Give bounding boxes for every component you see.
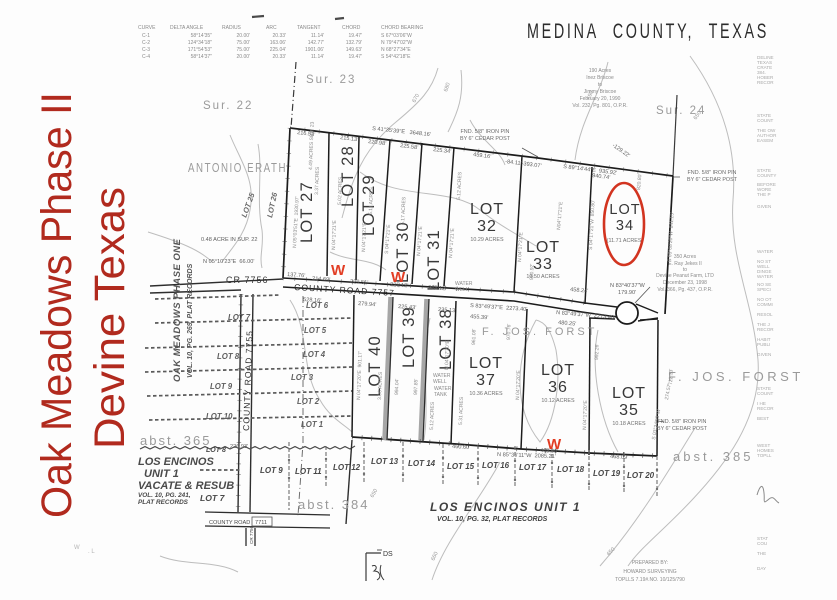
svg-text:163.06': 163.06' <box>270 40 286 46</box>
svg-text:LOT 39: LOT 39 <box>400 306 418 368</box>
svg-text:W: W <box>547 436 562 453</box>
svg-text:TANK: TANK <box>434 392 448 398</box>
svg-text:LOT 16: LOT 16 <box>482 461 510 470</box>
svg-text:10.29 ACRES: 10.29 ACRES <box>470 237 504 243</box>
svg-text:149.63': 149.63' <box>346 47 362 53</box>
svg-text:994.04': 994.04' <box>394 379 401 395</box>
svg-text:124°34'18": 124°34'18" <box>188 40 212 46</box>
svg-text:225.04': 225.04' <box>270 47 286 53</box>
svg-text:COUNT: COUNT <box>757 391 774 396</box>
svg-text:5.31 ACRES: 5.31 ACRES <box>458 396 465 425</box>
svg-text:528.16': 528.16' <box>303 297 322 304</box>
svg-text:3.06 ACRES: 3.06 ACRES <box>377 371 384 400</box>
svg-text:LOT 7: LOT 7 <box>200 493 226 503</box>
svg-text:10.36 ACRES: 10.36 ACRES <box>469 391 503 397</box>
svg-text:33: 33 <box>533 256 553 273</box>
svg-text:5.02 ACRES: 5.02 ACRES <box>337 176 344 205</box>
svg-text:OAK MEADOWS PHASE ONE: OAK MEADOWS PHASE ONE <box>172 238 183 382</box>
svg-text:35: 35 <box>619 402 639 419</box>
svg-text:75.00': 75.00' <box>237 47 251 53</box>
svg-text:19.47': 19.47' <box>349 33 363 39</box>
svg-text:COUNTY ROAD: COUNTY ROAD <box>209 520 250 526</box>
svg-text:LOT: LOT <box>612 385 646 402</box>
svg-text:RECOR: RECOR <box>757 327 774 332</box>
svg-text:THE: THE <box>757 551 766 556</box>
svg-text:F. JOS. FORST: F. JOS. FORST <box>668 369 804 384</box>
svg-text:11.14': 11.14' <box>311 33 324 39</box>
svg-text:997.85': 997.85' <box>413 379 420 395</box>
svg-text:N 83°40'37"W: N 83°40'37"W <box>610 283 646 289</box>
svg-text:LOT: LOT <box>470 201 504 218</box>
svg-text:W: W <box>331 262 346 279</box>
svg-text:455.39': 455.39' <box>470 314 489 321</box>
svg-text:DS: DS <box>383 551 393 558</box>
svg-text:LOT 1: LOT 1 <box>301 420 323 429</box>
svg-text:58°14'35": 58°14'35" <box>191 33 213 39</box>
svg-text:LOT 3: LOT 3 <box>291 373 314 382</box>
svg-text:RECOR: RECOR <box>757 406 774 411</box>
svg-text:LOT 8: LOT 8 <box>217 352 240 361</box>
svg-text:UNIT 1: UNIT 1 <box>144 468 179 480</box>
svg-text:20.00': 20.00' <box>237 33 251 39</box>
svg-text:VACATE & RESUB: VACATE & RESUB <box>138 480 234 492</box>
svg-text:LOS ENCINOS UNIT 1: LOS ENCINOS UNIT 1 <box>430 500 581 514</box>
svg-text:TANGENT: TANGENT <box>297 25 321 31</box>
svg-text:460.60': 460.60' <box>452 444 470 451</box>
svg-text:171°54'53": 171°54'53" <box>188 47 212 53</box>
svg-text:LOT 8: LOT 8 <box>206 447 226 454</box>
svg-text:992.26': 992.26' <box>594 344 601 360</box>
svg-text:EASEM: EASEM <box>757 138 773 143</box>
svg-text:DAY: DAY <box>757 566 766 571</box>
svg-text:20.33': 20.33' <box>273 33 287 39</box>
svg-text:980.92': 980.92' <box>529 264 536 280</box>
svg-text:ANTONIO ERATH: ANTONIO ERATH <box>188 161 287 175</box>
svg-text:MEDINA COUNTY, TEXAS: MEDINA COUNTY, TEXAS <box>527 19 769 43</box>
svg-text:LOT 15: LOT 15 <box>447 462 475 471</box>
svg-text:PREPARED BY:: PREPARED BY: <box>632 560 668 566</box>
svg-text:abst. 384: abst. 384 <box>298 497 370 512</box>
svg-text:W: W <box>74 545 80 551</box>
svg-text:RECOR: RECOR <box>757 80 774 85</box>
svg-text:N 04°17'20"E: N 04°17'20"E <box>582 399 589 430</box>
svg-text:COUNTY: COUNTY <box>757 173 776 178</box>
svg-text:CURVE: CURVE <box>138 25 156 31</box>
svg-text:N 05°10'23"E 66.00': N 05°10'23"E 66.00' <box>203 259 254 265</box>
svg-text:BY 6" CEDAR POST: BY 6" CEDAR POST <box>687 177 738 183</box>
svg-text:VOL. 10, PG. 32, PLAT RECORDS: VOL. 10, PG. 32, PLAT RECORDS <box>437 516 548 523</box>
svg-text:LOT 9: LOT 9 <box>260 466 283 475</box>
svg-text:32: 32 <box>477 218 497 235</box>
svg-text:LOT 4: LOT 4 <box>303 350 326 359</box>
svg-text:THE P: THE P <box>757 192 771 197</box>
svg-text:LOT 7: LOT 7 <box>228 313 251 322</box>
svg-text:36: 36 <box>548 379 568 396</box>
svg-text:December 23, 1998: December 23, 1998 <box>663 280 707 286</box>
svg-text:Inez Briscoe: Inez Briscoe <box>586 75 614 81</box>
svg-text:5.11 ACRES: 5.11 ACRES <box>368 187 375 216</box>
svg-text:C-4: C-4 <box>142 54 150 60</box>
svg-text:LOT 2: LOT 2 <box>297 397 320 406</box>
svg-text:11.14': 11.14' <box>311 54 324 60</box>
svg-text:F. JOS. FORST: F. JOS. FORST <box>482 326 597 338</box>
svg-text:C-3: C-3 <box>142 47 150 53</box>
svg-text:DELTA ANGLE: DELTA ANGLE <box>170 25 204 31</box>
svg-text:LOT 14: LOT 14 <box>408 459 436 468</box>
svg-text:RADIUS: RADIUS <box>222 25 242 31</box>
svg-text:FND. 5/8" IRON PIN: FND. 5/8" IRON PIN <box>461 129 510 135</box>
svg-text:RESOL: RESOL <box>757 312 773 317</box>
svg-text:LOT 17: LOT 17 <box>519 463 547 472</box>
svg-text:142.77': 142.77' <box>308 40 324 46</box>
svg-text:N 79°47'02"W: N 79°47'02"W <box>381 40 412 46</box>
svg-text:10.12 ACRES: 10.12 ACRES <box>541 398 575 404</box>
svg-text:Devine Peanut Farm, LTD: Devine Peanut Farm, LTD <box>656 273 714 279</box>
svg-text:W: W <box>391 269 406 286</box>
svg-text:226.93': 226.93' <box>230 444 248 450</box>
svg-text:LOT: LOT <box>609 202 640 218</box>
svg-text:Vol. 232, Pg. 801, O.P.R.: Vol. 232, Pg. 801, O.P.R. <box>572 103 627 109</box>
svg-text:5.12 ACRES: 5.12 ACRES <box>429 401 436 430</box>
svg-text:N 04°17'21"E: N 04°17'21"E <box>331 219 338 250</box>
svg-text:137.76': 137.76' <box>287 272 306 279</box>
svg-text:N 68°27'34"E: N 68°27'34"E <box>381 47 411 53</box>
svg-text:7711: 7711 <box>255 520 267 526</box>
svg-text:N 04°17'21"E: N 04°17'21"E <box>361 221 368 252</box>
svg-text:LOT: LOT <box>526 239 560 256</box>
svg-text:VOL. 10, PG. 241,: VOL. 10, PG. 241, <box>138 492 191 499</box>
svg-text:COU: COU <box>757 541 767 546</box>
svg-text:LOS ENCINOS: LOS ENCINOS <box>138 456 214 468</box>
svg-text:abst. 385: abst. 385 <box>673 449 754 464</box>
svg-text:to: to <box>598 82 602 88</box>
svg-text:10.18 ACRES: 10.18 ACRES <box>612 421 646 427</box>
svg-text:58°14'37": 58°14'37" <box>191 54 213 60</box>
svg-text:S 67°03'06"W: S 67°03'06"W <box>381 33 412 39</box>
svg-text:HOWARD SURVEYING: HOWARD SURVEYING <box>623 569 676 575</box>
svg-text:Sur. 23: Sur. 23 <box>306 74 356 86</box>
svg-text:BEST: BEST <box>757 416 769 421</box>
svg-text:19.47': 19.47' <box>349 54 363 60</box>
svg-text:LOT 19: LOT 19 <box>593 469 621 478</box>
svg-text:235.13': 235.13' <box>438 307 457 314</box>
svg-text:37: 37 <box>476 372 496 389</box>
svg-text:3.37 ACRES: 3.37 ACRES <box>314 166 321 195</box>
svg-text:S 54°42'18"E: S 54°42'18"E <box>381 54 411 60</box>
svg-text:abst. 365: abst. 365 <box>140 433 212 448</box>
svg-text:GIVEN: GIVEN <box>757 352 771 357</box>
svg-text:N 04°17'20"E: N 04°17'20"E <box>444 339 451 370</box>
svg-text:LOT: LOT <box>469 355 503 372</box>
svg-text:PLAT RECORDS: PLAT RECORDS <box>138 499 189 506</box>
svg-text:CHORD: CHORD <box>342 25 361 31</box>
svg-text:LOT 18: LOT 18 <box>557 465 585 474</box>
svg-text:CHORD BEARING: CHORD BEARING <box>381 25 423 31</box>
svg-text:C-1: C-1 <box>142 33 150 39</box>
svg-text:225.12': 225.12' <box>428 285 447 292</box>
svg-text:350 Acres: 350 Acres <box>674 254 697 260</box>
svg-text:75.00': 75.00' <box>237 40 251 46</box>
svg-text:Sur. 22: Sur. 22 <box>203 100 253 112</box>
svg-text:LOT: LOT <box>541 362 575 379</box>
svg-text:WATER: WATER <box>757 274 774 279</box>
svg-text:179.90': 179.90' <box>618 290 636 296</box>
svg-text:468.09': 468.09' <box>610 454 628 461</box>
svg-text:722.33': 722.33' <box>668 369 675 385</box>
svg-text:1901.06': 1901.06' <box>305 47 324 53</box>
svg-text:BY 6" CEDAR POST: BY 6" CEDAR POST <box>657 426 708 432</box>
svg-text:LOT 11: LOT 11 <box>295 467 322 476</box>
svg-text:. L: . L <box>88 549 95 555</box>
svg-text:961.08': 961.08' <box>471 329 478 345</box>
svg-text:CR 7756: CR 7756 <box>226 275 269 285</box>
svg-text:LOT 31: LOT 31 <box>425 229 443 291</box>
svg-text:LOT 9: LOT 9 <box>210 382 233 391</box>
svg-text:Devine Texas: Devine Texas <box>86 187 134 449</box>
svg-text:34: 34 <box>616 218 634 234</box>
svg-text:Oak Meadows Phase II: Oak Meadows Phase II <box>33 92 81 518</box>
svg-text:ARC: ARC <box>266 25 277 31</box>
svg-text:225.43': 225.43' <box>398 304 417 311</box>
svg-text:LOT 10: LOT 10 <box>206 412 233 421</box>
svg-text:FND. 5/8" IRON PIN: FND. 5/8" IRON PIN <box>688 170 737 176</box>
svg-text:279.94': 279.94' <box>358 301 377 308</box>
svg-text:190 Acres: 190 Acres <box>589 68 612 74</box>
svg-text:C-2: C-2 <box>142 40 150 46</box>
svg-text:TOPLLS 7.19#.NO. 10/125/790: TOPLLS 7.19#.NO. 10/125/790 <box>615 577 685 583</box>
svg-text:FND. 5/8" IRON PIN: FND. 5/8" IRON PIN <box>658 419 707 425</box>
svg-text:20.33': 20.33' <box>273 54 287 60</box>
svg-text:TOPLL: TOPLL <box>757 453 772 458</box>
svg-text:LOT 13: LOT 13 <box>371 457 399 466</box>
svg-text:LOT 5: LOT 5 <box>304 326 327 335</box>
svg-text:20.00': 20.00' <box>237 54 251 60</box>
svg-text:970.76': 970.76' <box>506 324 513 340</box>
svg-text:0.48 ACRE IN SUP. 22: 0.48 ACRE IN SUP. 22 <box>201 237 258 243</box>
svg-text:(11.71 ACRES): (11.71 ACRES) <box>607 238 644 244</box>
svg-text:WATER: WATER <box>757 249 774 254</box>
svg-text:BY 6" CEDAR POST: BY 6" CEDAR POST <box>460 136 511 142</box>
svg-text:CR 7750: CR 7750 <box>249 525 254 544</box>
svg-text:GIVEN: GIVEN <box>757 204 771 209</box>
svg-text:WELL: WELL <box>433 379 447 385</box>
svg-text:COMMI: COMMI <box>757 302 773 307</box>
svg-text:214.69': 214.69' <box>312 276 331 283</box>
svg-text:LOT 20: LOT 20 <box>627 471 655 480</box>
svg-text:VOL. 10, PG. 269, PLAT RECORDS: VOL. 10, PG. 269, PLAT RECORDS <box>187 263 194 378</box>
svg-text:N 04°17'20"E: N 04°17'20"E <box>515 369 522 400</box>
svg-text:COUNT: COUNT <box>757 118 774 123</box>
svg-text:PUBLI: PUBLI <box>757 342 770 347</box>
svg-text:LOT 12: LOT 12 <box>333 463 361 472</box>
svg-text:132.79': 132.79' <box>346 40 362 46</box>
svg-text:SPECI: SPECI <box>757 287 771 292</box>
